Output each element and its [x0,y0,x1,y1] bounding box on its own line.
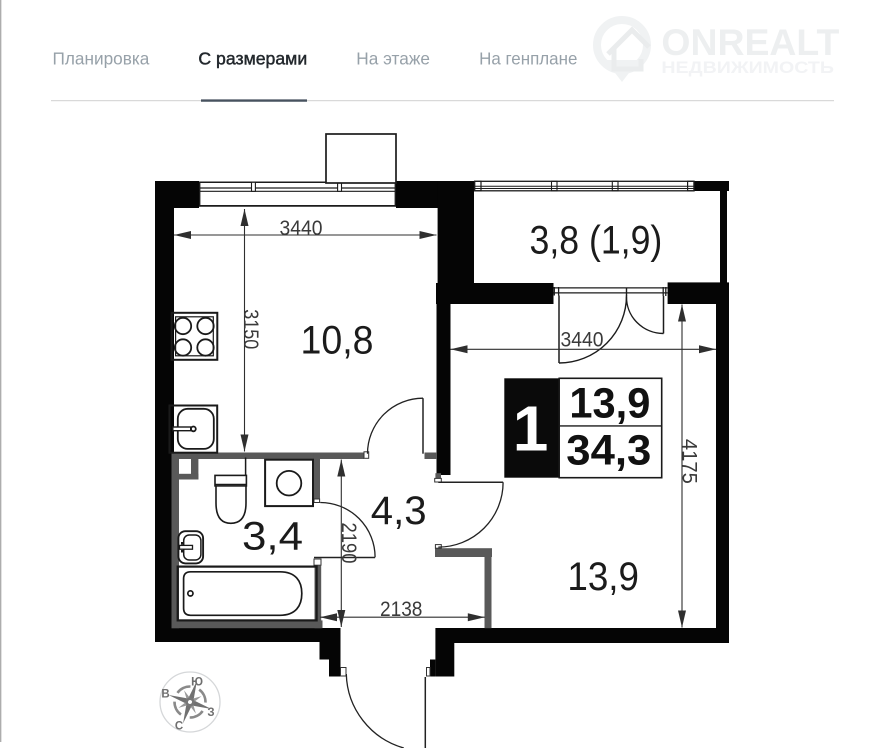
svg-text:2138: 2138 [380,598,423,621]
svg-text:1: 1 [513,393,549,465]
svg-text:4,3: 4,3 [371,489,427,533]
svg-text:З: З [207,707,214,719]
svg-text:НЕДВИЖИМОСТЬ: НЕДВИЖИМОСТЬ [661,58,834,77]
svg-text:3440: 3440 [561,328,604,351]
svg-text:13,9: 13,9 [567,555,639,599]
svg-text:13,9: 13,9 [569,380,650,427]
svg-text:На этаже: На этаже [356,49,430,69]
svg-text:На генплане: На генплане [479,49,577,69]
svg-text:3,8 (1,9): 3,8 (1,9) [530,219,663,263]
svg-text:3,4: 3,4 [242,514,303,558]
svg-text:В: В [161,689,169,701]
svg-text:Ю: Ю [191,677,203,689]
svg-text:3440: 3440 [280,217,323,240]
svg-text:Планировка: Планировка [53,49,150,69]
svg-text:С: С [175,721,183,733]
svg-text:С размерами: С размерами [198,49,307,69]
svg-text:10,8: 10,8 [301,319,374,363]
svg-text:4175: 4175 [678,439,701,484]
svg-text:34,3: 34,3 [566,428,651,475]
svg-text:2190: 2190 [337,523,360,564]
svg-text:3150: 3150 [239,309,262,349]
